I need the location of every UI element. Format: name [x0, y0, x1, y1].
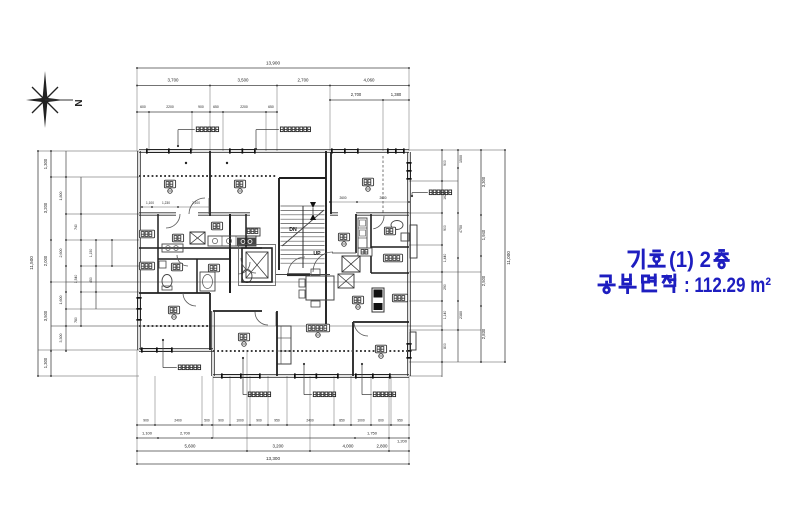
svg-text:900: 900: [443, 225, 447, 231]
svg-text:11,000: 11,000: [506, 251, 511, 265]
svg-text:11,500: 11,500: [29, 256, 34, 270]
svg-text:2400: 2400: [306, 419, 314, 423]
svg-text:780: 780: [74, 317, 78, 323]
svg-text:3,200: 3,200: [43, 202, 48, 213]
svg-text:2,830: 2,830: [481, 328, 486, 339]
svg-text:290: 290: [443, 284, 447, 290]
svg-text:2,700: 2,700: [351, 92, 362, 97]
svg-text:1000: 1000: [357, 419, 365, 423]
svg-text:1,300: 1,300: [43, 357, 48, 368]
svg-text:4750: 4750: [459, 225, 463, 233]
svg-text:3,500: 3,500: [238, 78, 250, 83]
svg-text:3,300: 3,300: [59, 334, 63, 343]
svg-text:2,700: 2,700: [298, 78, 310, 83]
svg-text:1,600: 1,600: [59, 296, 63, 305]
svg-text:1,800: 1,800: [59, 192, 63, 201]
svg-text:1,940: 1,940: [481, 229, 486, 240]
svg-text:950: 950: [397, 419, 403, 423]
svg-text:1,150: 1,150: [89, 249, 93, 258]
svg-text:3,300: 3,300: [481, 176, 486, 187]
svg-text:: 112.29 m²: : 112.29 m²: [684, 274, 771, 297]
svg-text:900: 900: [218, 419, 224, 423]
svg-text:2,500: 2,500: [481, 275, 486, 286]
svg-text:900: 900: [443, 160, 447, 166]
svg-text:1,440: 1,440: [443, 254, 447, 263]
svg-text:900: 900: [143, 419, 149, 423]
svg-text:1,100: 1,100: [142, 431, 153, 436]
svg-text:600: 600: [140, 105, 146, 109]
svg-text:2380: 2380: [459, 311, 463, 319]
svg-text:1,200: 1,200: [397, 439, 408, 444]
svg-text:2,700: 2,700: [180, 431, 191, 436]
svg-text:1,750: 1,750: [367, 431, 378, 436]
svg-text:13,900: 13,900: [266, 61, 280, 66]
svg-text:2200: 2200: [166, 105, 174, 109]
svg-text:740: 740: [74, 224, 78, 230]
svg-text:650: 650: [268, 105, 274, 109]
svg-text:650: 650: [213, 105, 219, 109]
svg-text:1,140: 1,140: [443, 311, 447, 320]
svg-text:4,000: 4,000: [343, 444, 355, 449]
svg-text:2600: 2600: [339, 196, 346, 200]
svg-text:500: 500: [204, 419, 210, 423]
svg-text:3,500: 3,500: [43, 310, 48, 321]
svg-text:2,800: 2,800: [377, 444, 389, 449]
svg-text:1,380: 1,380: [391, 92, 402, 97]
svg-text:1000: 1000: [236, 419, 244, 423]
svg-text:2,600: 2,600: [59, 249, 63, 258]
svg-text:5,600: 5,600: [185, 444, 197, 449]
svg-text:N: N: [74, 99, 85, 106]
svg-text:3,700: 3,700: [168, 78, 180, 83]
svg-text:3,200: 3,200: [273, 444, 285, 449]
svg-text:1,300: 1,300: [43, 158, 48, 169]
svg-text:950: 950: [274, 419, 280, 423]
svg-text:2,000: 2,000: [43, 255, 48, 266]
svg-text:1500: 1500: [459, 155, 463, 163]
svg-text:450: 450: [89, 277, 93, 283]
svg-text:2200: 2200: [240, 105, 248, 109]
svg-text:800: 800: [443, 343, 447, 349]
svg-text:4,060: 4,060: [364, 78, 376, 83]
svg-text:900: 900: [198, 105, 204, 109]
svg-text:2600: 2600: [379, 196, 386, 200]
svg-text:1,230: 1,230: [162, 201, 170, 205]
svg-text:DN: DN: [289, 227, 297, 233]
svg-text:600: 600: [378, 419, 384, 423]
svg-text:1,100: 1,100: [146, 201, 154, 205]
svg-text:13,300: 13,300: [266, 456, 280, 461]
svg-text:UP: UP: [313, 251, 321, 257]
svg-text:(1) 2: (1) 2: [669, 247, 711, 272]
svg-text:1,540: 1,540: [74, 275, 78, 284]
svg-text:850: 850: [339, 419, 345, 423]
svg-text:2400: 2400: [174, 419, 182, 423]
svg-text:900: 900: [256, 419, 262, 423]
